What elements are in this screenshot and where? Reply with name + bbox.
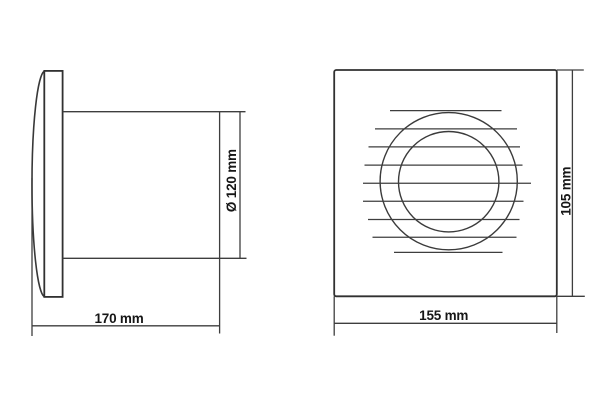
svg-text:170 mm: 170 mm bbox=[94, 311, 143, 326]
svg-text:Ø 120 mm: Ø 120 mm bbox=[224, 149, 239, 212]
svg-text:105 mm: 105 mm bbox=[559, 166, 574, 215]
svg-text:155 mm: 155 mm bbox=[419, 308, 468, 323]
